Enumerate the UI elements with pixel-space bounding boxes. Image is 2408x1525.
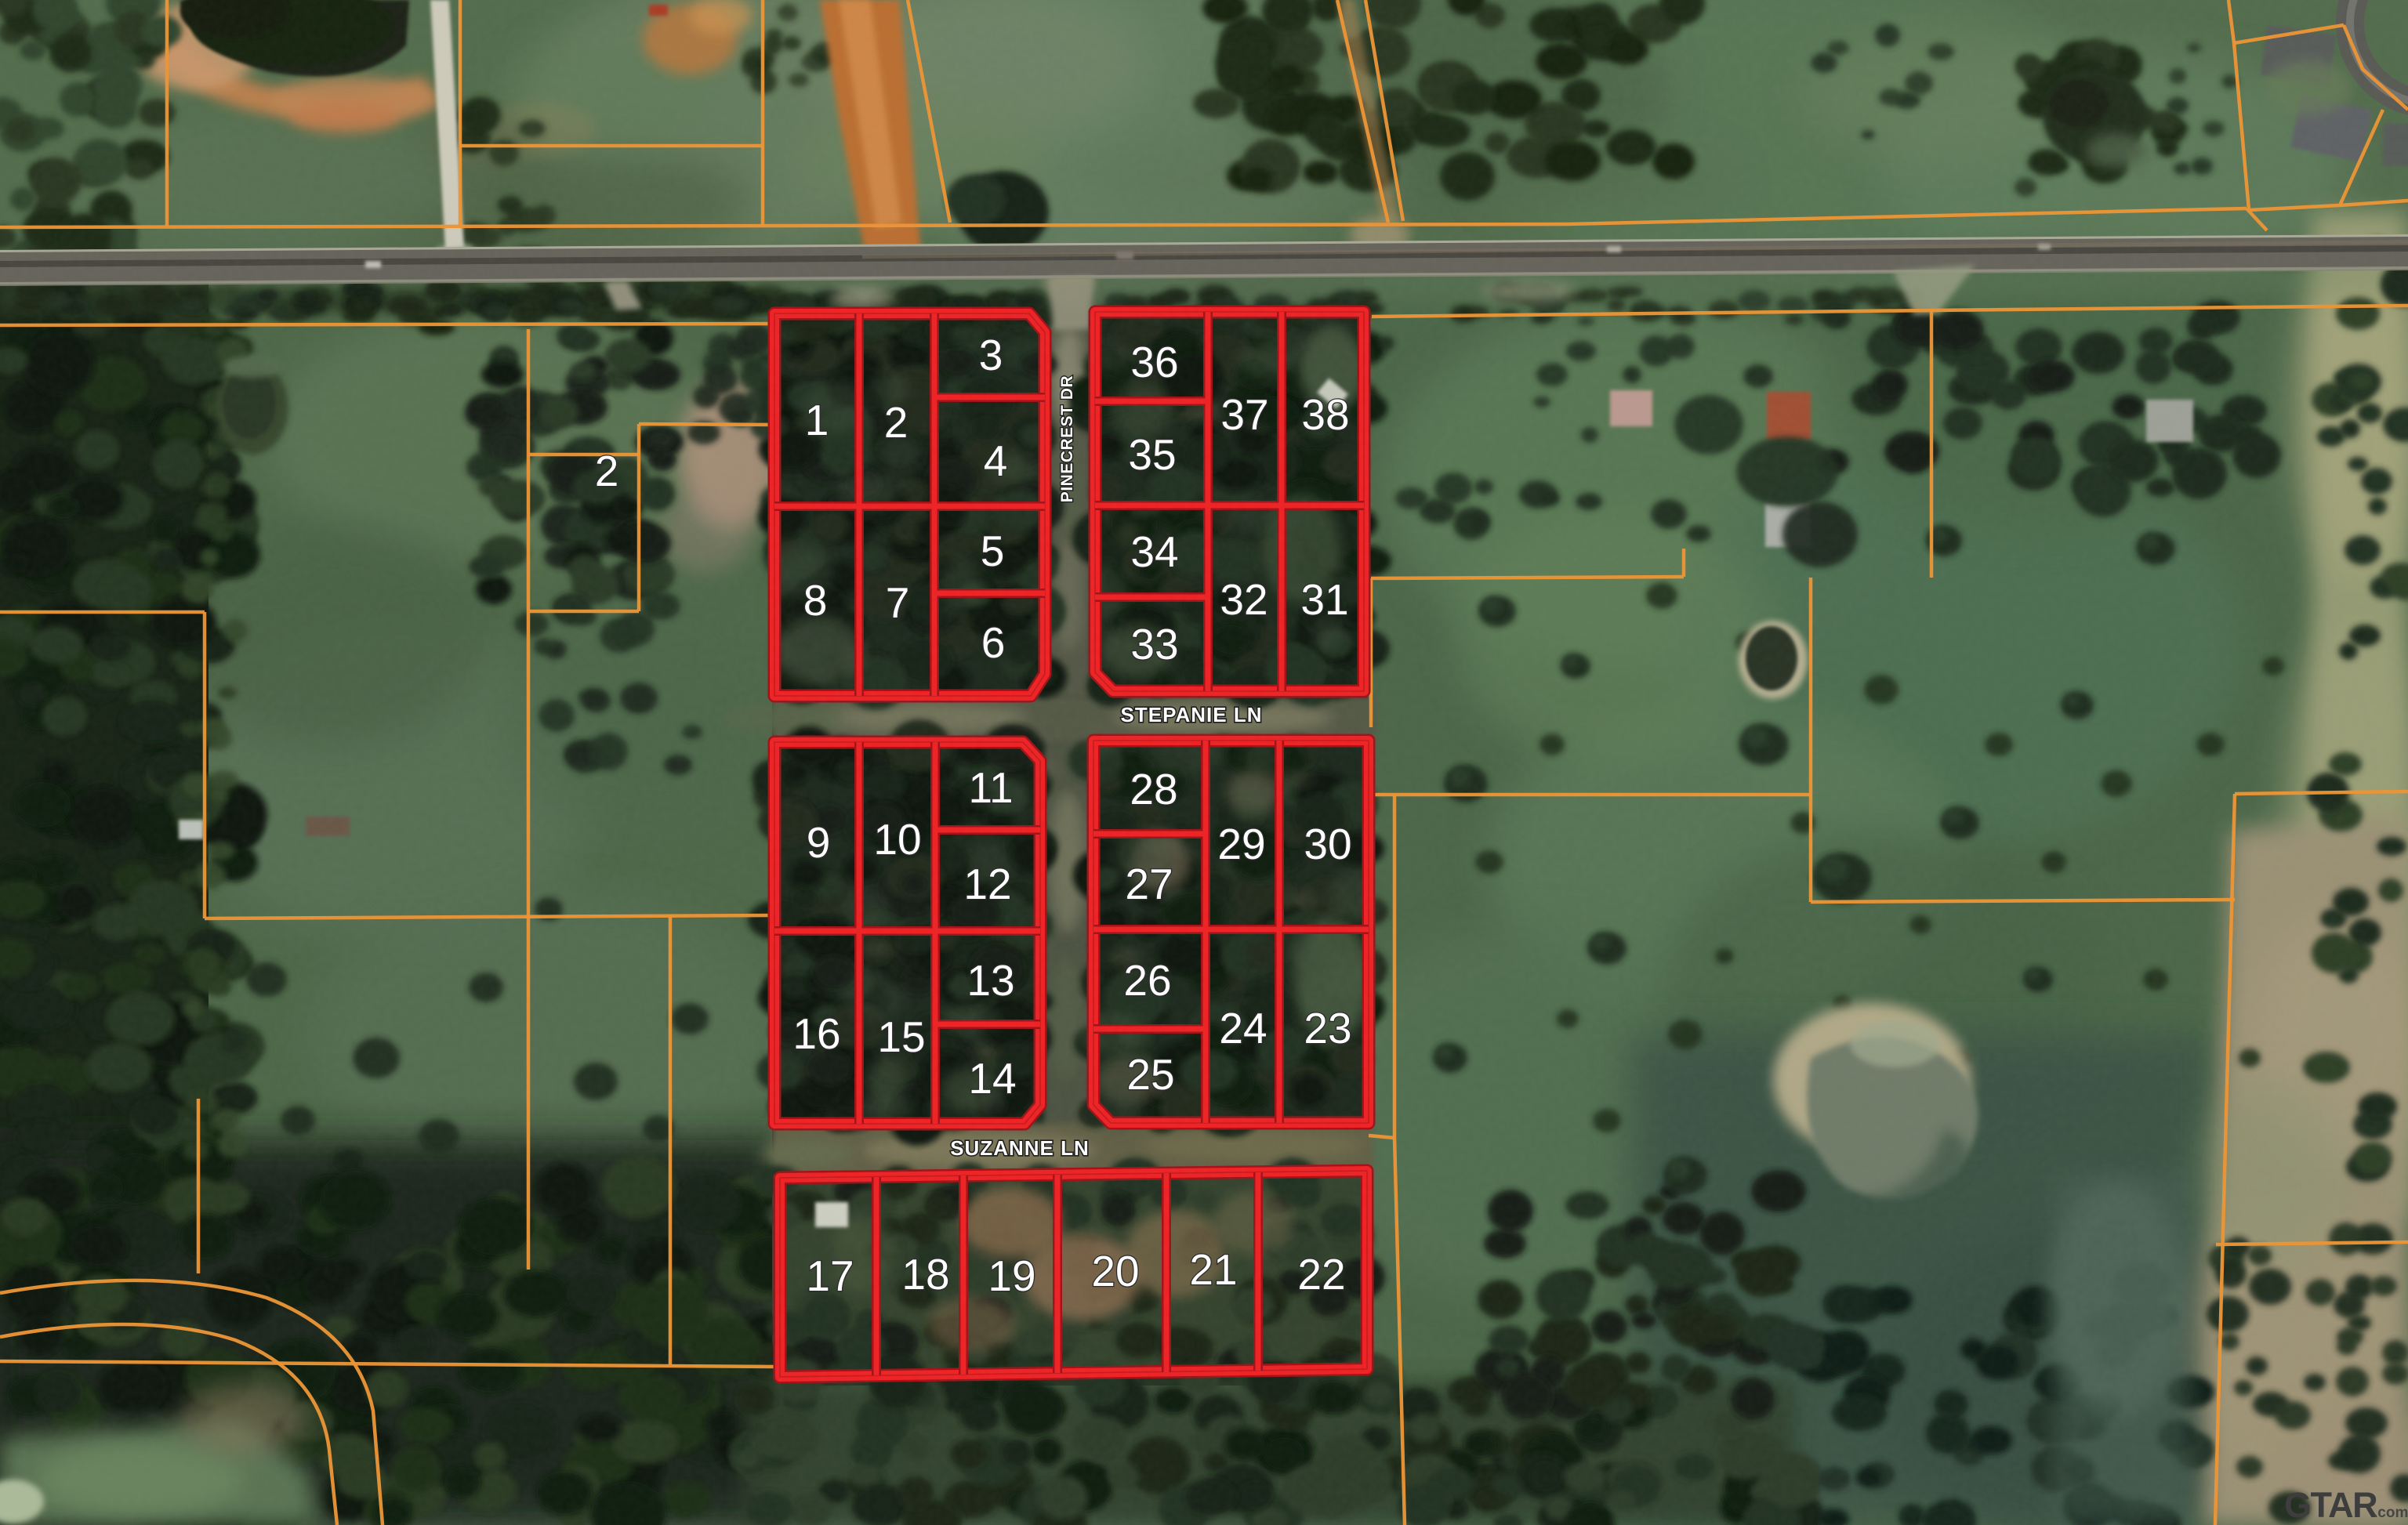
svg-text:.com: .com — [2374, 1505, 2408, 1521]
svg-text:GTAR: GTAR — [2284, 1485, 2377, 1525]
